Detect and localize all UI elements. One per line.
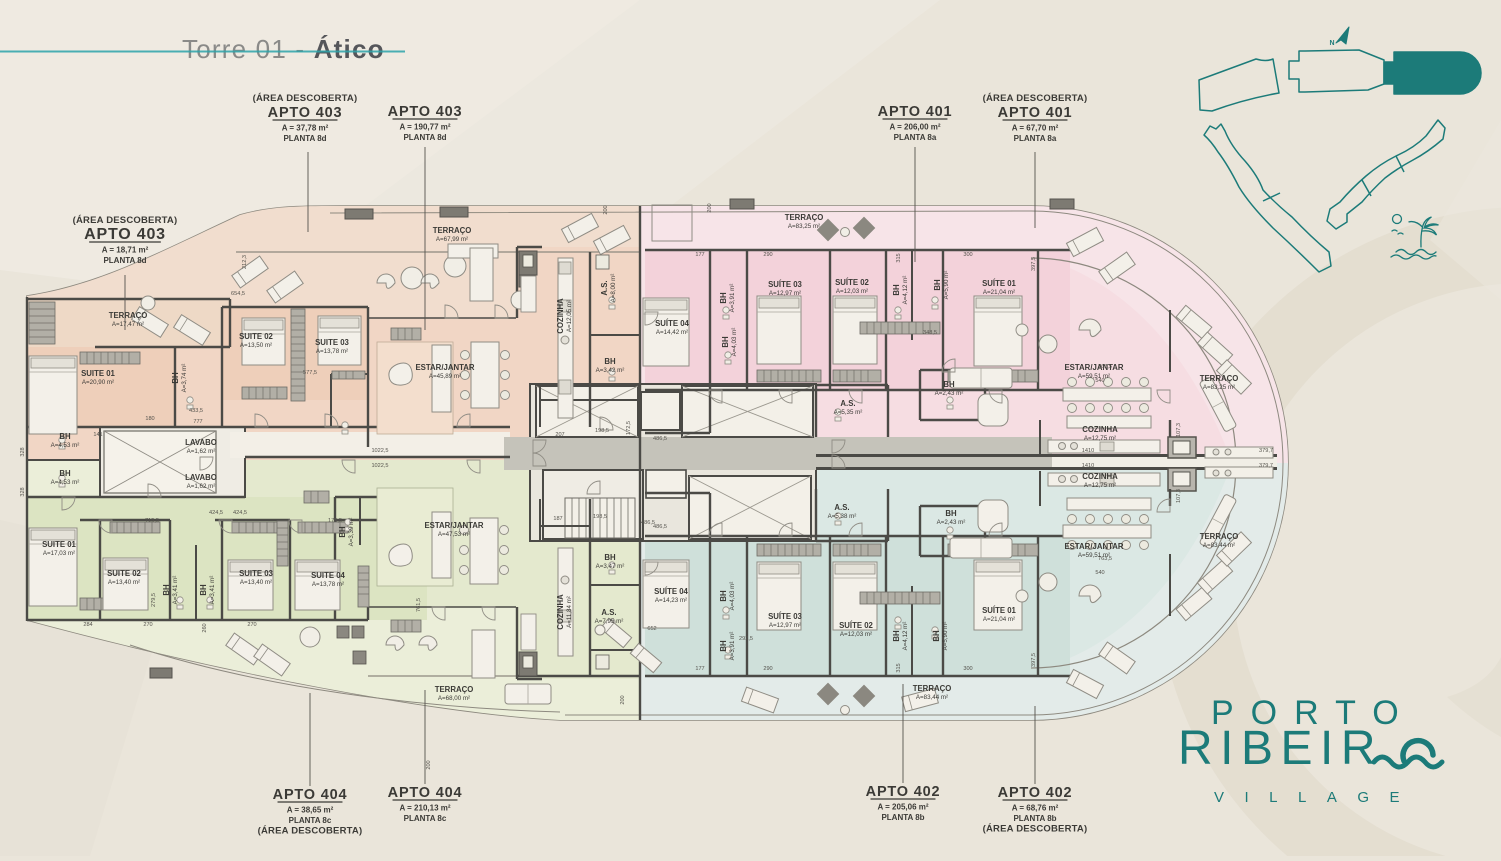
svg-text:A=68,00 m²: A=68,00 m² <box>438 695 470 702</box>
svg-text:A=13,50 m²: A=13,50 m² <box>240 342 272 349</box>
svg-text:200: 200 <box>603 205 609 214</box>
svg-text:A=13,78 m²: A=13,78 m² <box>312 581 344 588</box>
svg-text:652: 652 <box>647 626 656 632</box>
svg-text:177: 177 <box>695 252 704 258</box>
svg-text:654,5: 654,5 <box>231 291 245 297</box>
svg-text:A=4,53 m²: A=4,53 m² <box>51 442 80 449</box>
svg-text:A=4,12 m²: A=4,12 m² <box>902 276 909 305</box>
svg-text:763,5: 763,5 <box>1098 556 1112 562</box>
svg-text:TERRAÇO: TERRAÇO <box>109 311 148 320</box>
svg-text:1022,5: 1022,5 <box>371 463 388 469</box>
svg-text:BH: BH <box>162 584 171 596</box>
svg-text:BH: BH <box>719 590 728 602</box>
svg-text:A = 38,65 m²: A = 38,65 m² <box>287 806 334 815</box>
svg-text:777: 777 <box>193 419 202 425</box>
svg-text:A = 190,77 m²: A = 190,77 m² <box>399 123 450 132</box>
svg-text:COZINHA: COZINHA <box>556 298 565 334</box>
svg-text:APTO 404: APTO 404 <box>388 785 463 801</box>
svg-text:A = 67,70 m²: A = 67,70 m² <box>1012 124 1059 133</box>
svg-text:A=17,47 m²: A=17,47 m² <box>112 321 144 328</box>
svg-text:TERRAÇO: TERRAÇO <box>785 213 824 222</box>
svg-text:A=12,05 m²: A=12,05 m² <box>566 300 573 332</box>
svg-text:1410: 1410 <box>1082 463 1094 469</box>
svg-text:207: 207 <box>555 432 564 438</box>
svg-text:A=12,03 m²: A=12,03 m² <box>836 288 868 295</box>
svg-text:A=47,53 m²: A=47,53 m² <box>438 531 470 538</box>
svg-text:A=1,62 m²: A=1,62 m² <box>187 448 216 455</box>
svg-text:A=4,03 m²: A=4,03 m² <box>731 328 738 357</box>
svg-text:SUITE 02: SUITE 02 <box>239 332 273 341</box>
svg-text:BH: BH <box>604 357 616 366</box>
svg-text:A=3,42 m²: A=3,42 m² <box>596 367 625 374</box>
svg-text:A=3,74 m²: A=3,74 m² <box>181 364 188 393</box>
svg-text:107,3: 107,3 <box>1176 489 1182 503</box>
svg-text:180: 180 <box>145 416 154 422</box>
svg-text:A=4,12 m²: A=4,12 m² <box>902 622 909 651</box>
svg-text:A=13,78 m²: A=13,78 m² <box>316 348 348 355</box>
svg-text:A=12,03 m²: A=12,03 m² <box>840 631 872 638</box>
svg-text:A=3,47 m²: A=3,47 m² <box>596 563 625 570</box>
svg-text:200: 200 <box>426 760 432 769</box>
svg-text:ESTAR/JANTAR: ESTAR/JANTAR <box>424 521 483 530</box>
svg-text:COZINHA: COZINHA <box>1082 472 1118 481</box>
svg-text:279,5: 279,5 <box>151 593 157 607</box>
svg-text:328: 328 <box>20 447 26 456</box>
svg-text:A=4,03 m²: A=4,03 m² <box>729 582 736 611</box>
svg-text:SUITE 04: SUITE 04 <box>311 571 345 580</box>
svg-text:ESTAR/JANTAR: ESTAR/JANTAR <box>1064 363 1123 372</box>
svg-text:PLANTA 8d: PLANTA 8d <box>103 256 146 265</box>
svg-text:A=13,40 m²: A=13,40 m² <box>108 579 140 586</box>
svg-text:397,5: 397,5 <box>1031 257 1037 271</box>
svg-text:SUITE 01: SUITE 01 <box>81 369 115 378</box>
svg-text:SUITE 03: SUITE 03 <box>239 569 273 578</box>
svg-text:SUÍTE 04: SUÍTE 04 <box>654 587 688 596</box>
svg-text:(ÁREA DESCOBERTA): (ÁREA DESCOBERTA) <box>73 215 178 226</box>
svg-text:A.S.: A.S. <box>600 280 609 295</box>
svg-text:A = 18,71 m²: A = 18,71 m² <box>102 246 149 255</box>
svg-text:BH: BH <box>59 469 71 478</box>
svg-text:PLANTA 8a: PLANTA 8a <box>1014 134 1057 143</box>
svg-text:1022,5: 1022,5 <box>371 448 388 454</box>
svg-text:APTO 404: APTO 404 <box>273 787 348 803</box>
svg-text:486,5: 486,5 <box>641 520 655 526</box>
svg-text:A=3,91 m²: A=3,91 m² <box>729 632 736 661</box>
svg-text:APTO 402: APTO 402 <box>866 784 941 800</box>
svg-text:A=45,89 m²: A=45,89 m² <box>429 373 461 380</box>
svg-text:BH: BH <box>199 584 208 596</box>
svg-text:N: N <box>1329 40 1334 47</box>
svg-text:A=14,23 m²: A=14,23 m² <box>655 597 687 604</box>
svg-text:486,5: 486,5 <box>653 436 667 442</box>
svg-text:A=59,51 m²: A=59,51 m² <box>1078 373 1110 380</box>
svg-text:SUITE 01: SUITE 01 <box>42 540 76 549</box>
svg-text:A=83,44 m²: A=83,44 m² <box>1203 542 1235 549</box>
svg-text:141: 141 <box>93 432 102 438</box>
svg-text:A=12,97 m²: A=12,97 m² <box>769 622 801 629</box>
svg-text:290: 290 <box>763 666 772 672</box>
svg-text:APTO 401: APTO 401 <box>998 105 1073 121</box>
svg-text:BH: BH <box>932 630 941 642</box>
svg-text:A=67,99 m²: A=67,99 m² <box>436 236 468 243</box>
svg-text:290: 290 <box>763 252 772 258</box>
svg-text:A=12,75 m²: A=12,75 m² <box>1084 435 1116 442</box>
svg-text:A=3,41 m²: A=3,41 m² <box>209 576 216 605</box>
svg-text:SUÍTE 02: SUÍTE 02 <box>835 278 869 287</box>
svg-text:TERRAÇO: TERRAÇO <box>1200 374 1239 383</box>
svg-text:TERRAÇO: TERRAÇO <box>433 226 472 235</box>
svg-text:212,3: 212,3 <box>242 255 248 269</box>
svg-text:SUÍTE 03: SUÍTE 03 <box>768 280 802 289</box>
svg-text:BH: BH <box>892 630 901 642</box>
svg-text:(ÁREA DESCOBERTA): (ÁREA DESCOBERTA) <box>983 824 1088 835</box>
svg-text:A=7,95 m²: A=7,95 m² <box>595 618 624 625</box>
svg-text:(ÁREA DESCOBERTA): (ÁREA DESCOBERTA) <box>983 93 1088 104</box>
svg-text:PLANTA 8d: PLANTA 8d <box>403 133 446 142</box>
svg-text:RIBEIR: RIBEIR <box>1178 722 1383 775</box>
svg-text:107,3: 107,3 <box>1176 423 1182 437</box>
svg-text:APTO 402: APTO 402 <box>998 785 1073 801</box>
svg-text:292,5: 292,5 <box>739 636 753 642</box>
svg-text:348,5: 348,5 <box>923 330 937 336</box>
svg-text:A.S.: A.S. <box>840 399 855 408</box>
svg-text:BH: BH <box>171 372 180 384</box>
svg-text:APTO 401: APTO 401 <box>878 104 953 120</box>
svg-text:A=3,39 m²: A=3,39 m² <box>348 518 355 547</box>
svg-text:A=83,25 m²: A=83,25 m² <box>1203 384 1235 391</box>
svg-text:ESTAR/JANTAR: ESTAR/JANTAR <box>1064 542 1123 551</box>
svg-text:A=4,53 m²: A=4,53 m² <box>51 479 80 486</box>
svg-text:SUITE 02: SUITE 02 <box>107 569 141 578</box>
svg-text:540: 540 <box>1095 570 1104 576</box>
svg-text:ESTAR/JANTAR: ESTAR/JANTAR <box>415 363 474 372</box>
svg-text:TERRAÇO: TERRAÇO <box>435 685 474 694</box>
svg-text:BH: BH <box>338 526 347 538</box>
svg-text:284: 284 <box>83 622 92 628</box>
svg-text:433,5: 433,5 <box>189 408 203 414</box>
svg-text:(ÁREA DESCOBERTA): (ÁREA DESCOBERTA) <box>253 93 358 104</box>
svg-text:SUÍTE 01: SUÍTE 01 <box>982 279 1016 288</box>
svg-text:A=5,90 m²: A=5,90 m² <box>942 622 949 651</box>
svg-text:486,5: 486,5 <box>653 524 667 530</box>
svg-text:A = 206,00 m²: A = 206,00 m² <box>889 123 940 132</box>
svg-text:A.S.: A.S. <box>834 503 849 512</box>
svg-text:APTO 403: APTO 403 <box>388 104 463 120</box>
svg-text:379,7: 379,7 <box>1259 448 1273 454</box>
svg-text:BH: BH <box>719 292 728 304</box>
svg-text:763,5: 763,5 <box>1098 364 1112 370</box>
svg-text:A=12,75 m²: A=12,75 m² <box>1084 482 1116 489</box>
svg-text:A=20,90 m²: A=20,90 m² <box>82 379 114 386</box>
svg-text:PLANTA 8c: PLANTA 8c <box>289 816 332 825</box>
svg-text:BH: BH <box>945 509 957 518</box>
svg-text:PLANTA 8d: PLANTA 8d <box>283 134 326 143</box>
svg-text:270: 270 <box>143 622 152 628</box>
svg-text:175,5: 175,5 <box>328 518 342 524</box>
svg-text:Torre 01 - Ático: Torre 01 - Ático <box>182 34 385 64</box>
svg-text:PLANTA 8b: PLANTA 8b <box>1013 814 1056 823</box>
svg-text:PLANTA 8b: PLANTA 8b <box>881 813 924 822</box>
svg-text:A=1,62 m²: A=1,62 m² <box>187 483 216 490</box>
svg-text:198,5: 198,5 <box>593 514 607 520</box>
svg-text:A=83,44 m²: A=83,44 m² <box>916 694 948 701</box>
svg-text:LAVABO: LAVABO <box>185 438 217 447</box>
svg-text:187: 187 <box>553 516 562 522</box>
svg-text:200: 200 <box>620 695 626 704</box>
svg-text:A.S.: A.S. <box>601 608 616 617</box>
svg-text:COZINHA: COZINHA <box>556 594 565 630</box>
svg-text:A=21,04 m²: A=21,04 m² <box>983 616 1015 623</box>
svg-text:315: 315 <box>896 663 902 672</box>
svg-text:PLANTA 8c: PLANTA 8c <box>404 814 447 823</box>
svg-text:A=13,40 m²: A=13,40 m² <box>240 579 272 586</box>
svg-text:A = 210,13 m²: A = 210,13 m² <box>399 804 450 813</box>
svg-text:A = 37,78 m²: A = 37,78 m² <box>282 124 329 133</box>
svg-text:BH: BH <box>933 279 942 291</box>
svg-text:BH: BH <box>59 432 71 441</box>
svg-text:172,5: 172,5 <box>626 421 632 435</box>
svg-text:APTO 403: APTO 403 <box>84 226 166 243</box>
svg-text:1410: 1410 <box>1082 448 1094 454</box>
svg-text:A = 205,06 m²: A = 205,06 m² <box>877 803 928 812</box>
svg-text:328: 328 <box>20 487 26 496</box>
svg-text:424,5: 424,5 <box>209 510 223 516</box>
svg-text:BH: BH <box>892 284 901 296</box>
svg-text:A=5,38 m²: A=5,38 m² <box>828 513 857 520</box>
svg-text:715,5: 715,5 <box>145 518 159 524</box>
svg-text:SUÍTE 01: SUÍTE 01 <box>982 606 1016 615</box>
svg-text:540: 540 <box>1095 378 1104 384</box>
svg-text:SUITE 03: SUITE 03 <box>315 338 349 347</box>
svg-text:397,5: 397,5 <box>1031 653 1037 667</box>
svg-text:A=2,43 m²: A=2,43 m² <box>935 390 964 397</box>
svg-text:A=14,42 m²: A=14,42 m² <box>656 329 688 336</box>
svg-text:A=3,91 m²: A=3,91 m² <box>729 284 736 313</box>
svg-text:A=12,97 m²: A=12,97 m² <box>769 290 801 297</box>
svg-text:300: 300 <box>963 666 972 672</box>
svg-text:300: 300 <box>963 252 972 258</box>
svg-text:BH: BH <box>721 336 730 348</box>
svg-text:200: 200 <box>707 203 713 212</box>
svg-text:577,5: 577,5 <box>303 370 317 376</box>
svg-text:A=5,35 m²: A=5,35 m² <box>834 409 863 416</box>
svg-text:LAVABO: LAVABO <box>185 473 217 482</box>
svg-text:A=21,04 m²: A=21,04 m² <box>983 289 1015 296</box>
svg-text:260: 260 <box>202 623 208 632</box>
svg-text:270: 270 <box>247 622 256 628</box>
svg-text:BH: BH <box>719 640 728 652</box>
svg-text:761,5: 761,5 <box>416 598 422 612</box>
svg-text:A=2,43 m²: A=2,43 m² <box>937 519 966 526</box>
svg-text:A=5,90 m²: A=5,90 m² <box>943 271 950 300</box>
svg-text:APTO 403: APTO 403 <box>268 105 343 121</box>
svg-text:SUÍTE 03: SUÍTE 03 <box>768 612 802 621</box>
svg-text:TERRAÇO: TERRAÇO <box>913 684 952 693</box>
svg-text:COZINHA: COZINHA <box>1082 425 1118 434</box>
svg-text:A=8,00 m²: A=8,00 m² <box>610 274 617 303</box>
svg-text:PLANTA 8a: PLANTA 8a <box>894 133 937 142</box>
svg-text:A = 68,76 m²: A = 68,76 m² <box>1012 804 1059 813</box>
svg-text:379,7: 379,7 <box>1259 463 1273 469</box>
svg-text:424,5: 424,5 <box>233 510 247 516</box>
svg-text:VILLAGE: VILLAGE <box>1214 789 1420 806</box>
svg-text:(ÁREA DESCOBERTA): (ÁREA DESCOBERTA) <box>258 826 363 837</box>
svg-text:A=83,25 m²: A=83,25 m² <box>788 223 820 230</box>
svg-text:315: 315 <box>896 253 902 262</box>
svg-text:A=17,03 m²: A=17,03 m² <box>43 550 75 557</box>
svg-text:198,5: 198,5 <box>595 428 609 434</box>
svg-text:177: 177 <box>695 666 704 672</box>
svg-text:A=11,84 m²: A=11,84 m² <box>566 596 573 628</box>
svg-text:A=3,41 m²: A=3,41 m² <box>172 576 179 605</box>
svg-text:SUÍTE 04: SUÍTE 04 <box>655 319 689 328</box>
svg-text:BH: BH <box>604 553 616 562</box>
svg-text:SUÍTE 02: SUÍTE 02 <box>839 621 873 630</box>
svg-text:BH: BH <box>943 380 955 389</box>
svg-text:TERRAÇO: TERRAÇO <box>1200 532 1239 541</box>
